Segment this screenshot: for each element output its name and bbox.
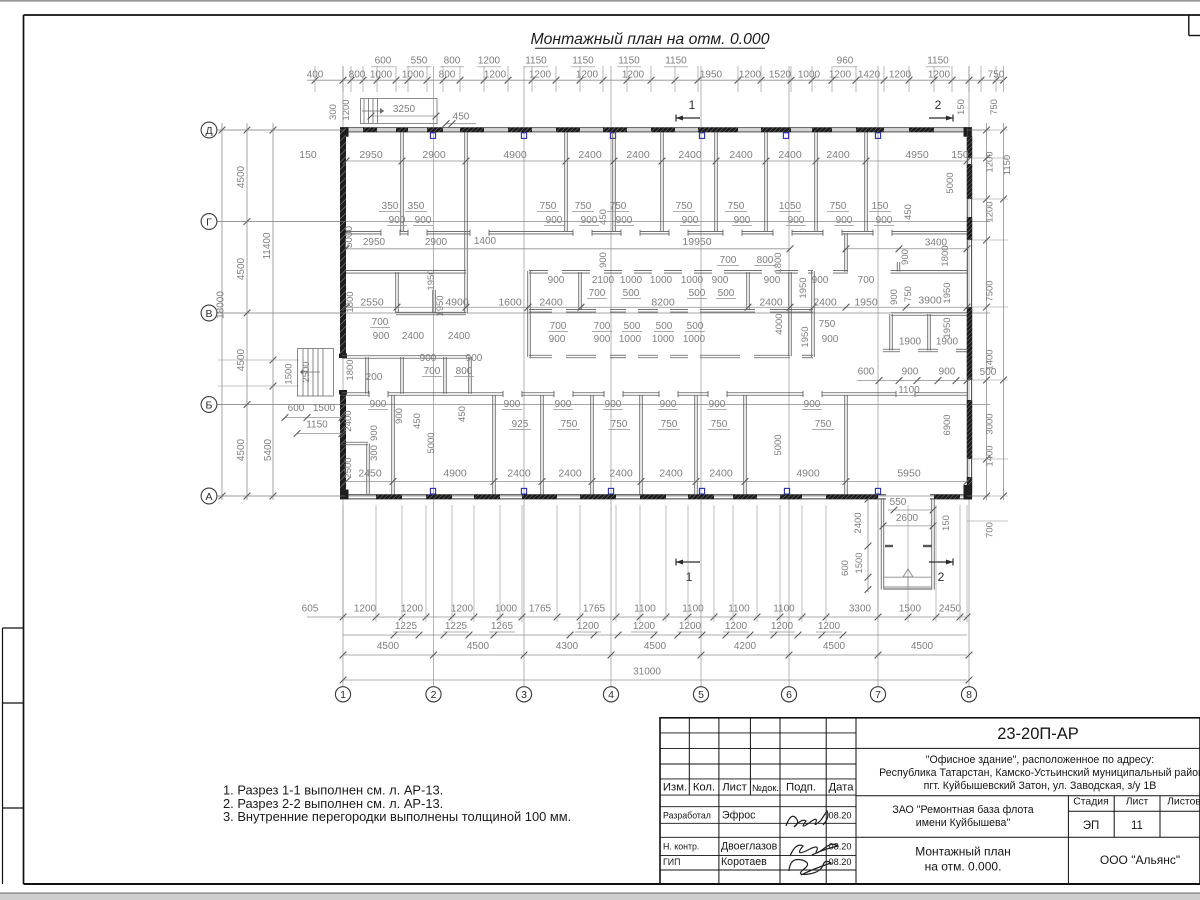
svg-text:08.20: 08.20 [829, 811, 852, 821]
svg-text:1200: 1200 [985, 201, 996, 222]
svg-text:900: 900 [389, 215, 406, 226]
svg-text:4: 4 [608, 689, 614, 701]
svg-text:5000: 5000 [344, 225, 355, 248]
svg-text:имени Куйбышева": имени Куйбышева" [916, 817, 1011, 829]
svg-text:750: 750 [575, 201, 592, 212]
svg-text:Эфрос: Эфрос [722, 810, 756, 822]
svg-text:11: 11 [1131, 820, 1143, 832]
svg-text:4300: 4300 [556, 641, 579, 652]
svg-text:5000: 5000 [426, 432, 437, 453]
svg-text:1950: 1950 [800, 326, 811, 347]
svg-text:1800: 1800 [345, 291, 356, 312]
svg-text:2: 2 [431, 689, 437, 701]
svg-text:2400: 2400 [729, 149, 753, 161]
svg-text:200: 200 [366, 372, 383, 383]
svg-text:900: 900 [548, 275, 565, 286]
svg-text:700: 700 [589, 288, 606, 299]
svg-text:4500: 4500 [236, 438, 247, 461]
svg-text:700: 700 [372, 317, 389, 328]
svg-text:800: 800 [456, 366, 473, 377]
svg-text:1200: 1200 [818, 621, 841, 632]
svg-text:1950: 1950 [700, 70, 723, 81]
svg-text:1200: 1200 [577, 621, 600, 632]
svg-text:1400: 1400 [474, 236, 497, 247]
svg-text:1950: 1950 [942, 282, 953, 303]
svg-text:Д: Д [205, 125, 212, 137]
svg-text:900: 900 [889, 289, 900, 305]
svg-text:1950: 1950 [942, 317, 953, 338]
svg-text:Подп.: Подп. [786, 782, 816, 794]
svg-text:700: 700 [550, 321, 567, 332]
svg-text:1000: 1000 [402, 70, 425, 81]
svg-text:2400: 2400 [402, 331, 425, 342]
svg-text:1200: 1200 [451, 604, 474, 615]
svg-text:Монтажный план: Монтажный план [915, 845, 1011, 859]
svg-text:900: 900 [420, 353, 437, 364]
svg-text:2100: 2100 [592, 275, 615, 286]
svg-text:1150: 1150 [665, 56, 687, 67]
svg-text:1765: 1765 [583, 604, 606, 615]
svg-text:1950: 1950 [426, 269, 437, 290]
svg-text:800: 800 [444, 56, 461, 67]
svg-text:4900: 4900 [443, 468, 467, 480]
svg-text:900: 900 [546, 215, 563, 226]
svg-text:960: 960 [837, 56, 854, 67]
svg-text:900: 900 [836, 215, 853, 226]
svg-text:1200: 1200 [679, 621, 702, 632]
svg-text:1200: 1200 [341, 99, 352, 120]
svg-text:2400: 2400 [558, 468, 582, 480]
svg-text:1150: 1150 [927, 56, 949, 67]
svg-text:500: 500 [718, 288, 735, 299]
svg-text:1800: 1800 [345, 359, 356, 380]
svg-text:750: 750 [989, 99, 1000, 115]
svg-text:550: 550 [411, 56, 428, 67]
svg-text:750: 750 [661, 419, 678, 430]
svg-text:1950: 1950 [854, 297, 878, 309]
svg-text:900: 900 [616, 215, 633, 226]
svg-text:2400: 2400 [778, 149, 802, 161]
svg-text:1000: 1000 [652, 334, 675, 345]
svg-text:750: 750 [561, 419, 578, 430]
svg-text:700: 700 [424, 366, 441, 377]
svg-text:4900: 4900 [796, 468, 820, 480]
svg-text:2400: 2400 [853, 512, 864, 533]
svg-text:1200: 1200 [739, 70, 762, 81]
svg-text:3. Внутренние перегородки выпо: 3. Внутренние перегородки выполнены толщ… [223, 809, 571, 824]
svg-text:900: 900 [369, 425, 380, 441]
svg-text:пгт. Куйбышевский Затон, ул. З: пгт. Куйбышевский Затон, ул. Заводская, … [924, 780, 1157, 792]
svg-text:1200: 1200 [576, 70, 599, 81]
svg-text:4500: 4500 [823, 641, 846, 652]
svg-text:750: 750 [676, 201, 693, 212]
svg-text:Лист: Лист [1126, 797, 1149, 808]
svg-text:8200: 8200 [651, 297, 675, 309]
svg-text:600: 600 [375, 56, 392, 67]
svg-text:Н. контр.: Н. контр. [663, 842, 699, 852]
svg-text:1500: 1500 [854, 552, 865, 573]
svg-text:1265: 1265 [491, 621, 514, 632]
svg-text:2450: 2450 [358, 468, 382, 480]
svg-text:ООО "Альянс": ООО "Альянс" [1100, 853, 1180, 867]
svg-text:1600: 1600 [498, 297, 522, 309]
svg-text:1800: 1800 [773, 252, 784, 273]
svg-text:2400: 2400 [539, 297, 563, 309]
svg-text:1000: 1000 [683, 334, 706, 345]
svg-text:1900: 1900 [899, 337, 922, 348]
svg-text:500: 500 [656, 321, 673, 332]
svg-text:Г: Г [206, 216, 212, 228]
svg-text:150: 150 [951, 149, 969, 161]
svg-text:150: 150 [956, 99, 967, 115]
svg-text:900: 900 [709, 399, 726, 410]
svg-text:1420: 1420 [858, 70, 881, 81]
svg-text:1200: 1200 [354, 604, 377, 615]
svg-text:900: 900 [594, 334, 611, 345]
svg-text:900: 900 [549, 334, 566, 345]
svg-text:2400: 2400 [759, 297, 783, 309]
svg-text:1200: 1200 [622, 70, 645, 81]
svg-text:450: 450 [598, 209, 609, 225]
svg-text:08.20: 08.20 [829, 842, 852, 852]
svg-text:750: 750 [903, 286, 914, 302]
svg-text:1150: 1150 [572, 56, 594, 67]
svg-text:1520: 1520 [769, 70, 792, 81]
svg-text:1200: 1200 [484, 70, 507, 81]
svg-text:500: 500 [687, 321, 704, 332]
svg-text:150: 150 [299, 149, 317, 161]
svg-text:4000: 4000 [774, 313, 785, 334]
svg-text:700: 700 [594, 321, 611, 332]
svg-text:3: 3 [521, 689, 527, 701]
svg-text:3300: 3300 [849, 604, 872, 615]
svg-text:900: 900 [876, 215, 893, 226]
svg-text:1200: 1200 [771, 621, 794, 632]
svg-text:550: 550 [890, 497, 907, 508]
svg-text:2900: 2900 [422, 149, 446, 161]
svg-text:1200: 1200 [633, 621, 656, 632]
svg-text:на отм. 0.000.: на отм. 0.000. [925, 860, 1002, 874]
svg-text:450: 450 [457, 406, 468, 422]
svg-text:1100: 1100 [634, 604, 656, 615]
svg-text:2400: 2400 [826, 149, 850, 161]
svg-text:Стадия: Стадия [1073, 797, 1108, 808]
svg-text:1000: 1000 [495, 604, 518, 615]
svg-text:1150: 1150 [618, 56, 640, 67]
svg-text:31000: 31000 [633, 667, 661, 678]
svg-text:800: 800 [757, 255, 774, 266]
svg-text:1100: 1100 [682, 604, 704, 615]
svg-text:1150: 1150 [306, 420, 328, 431]
svg-text:4200: 4200 [734, 641, 757, 652]
svg-text:Лист: Лист [722, 782, 747, 794]
svg-text:900: 900 [712, 275, 729, 286]
svg-text:900: 900 [902, 367, 919, 378]
svg-text:2550: 2550 [360, 297, 384, 309]
svg-text:2400: 2400 [659, 468, 683, 480]
svg-text:1200: 1200 [478, 56, 501, 67]
svg-text:6900: 6900 [942, 414, 953, 435]
svg-text:Республика Татарстан, Камско-У: Республика Татарстан, Камско-Устьинский … [879, 767, 1200, 779]
svg-text:1000: 1000 [620, 275, 643, 286]
svg-text:750: 750 [819, 319, 836, 330]
svg-text:900: 900 [788, 215, 805, 226]
svg-text:2600: 2600 [896, 513, 919, 524]
svg-text:750: 750 [728, 201, 745, 212]
svg-text:2950: 2950 [359, 149, 383, 161]
svg-text:700: 700 [720, 255, 737, 266]
svg-text:ГИП: ГИП [663, 857, 680, 867]
svg-text:900: 900 [812, 275, 829, 286]
svg-text:1200: 1200 [725, 621, 748, 632]
svg-text:1000: 1000 [798, 70, 821, 81]
svg-text:"Офисное здание", расположенно: "Офисное здание", расположенное по адрес… [926, 754, 1154, 766]
svg-text:5000: 5000 [773, 434, 784, 455]
svg-text:2400: 2400 [626, 149, 650, 161]
svg-text:8: 8 [966, 689, 972, 701]
svg-text:925: 925 [512, 419, 529, 430]
svg-text:900: 900 [466, 353, 483, 364]
svg-text:№док.: №док. [752, 783, 779, 793]
svg-text:750: 750 [988, 70, 1005, 81]
svg-text:500: 500 [623, 288, 640, 299]
svg-text:Коротаев: Коротаев [721, 856, 767, 868]
svg-text:7500: 7500 [985, 280, 996, 301]
svg-text:1950: 1950 [435, 295, 446, 316]
svg-text:1950: 1950 [798, 277, 809, 298]
svg-text:900: 900 [660, 399, 677, 410]
svg-text:5950: 5950 [897, 468, 921, 480]
svg-text:1150: 1150 [525, 56, 547, 67]
svg-text:6: 6 [786, 689, 792, 701]
svg-text:Дата: Дата [828, 782, 854, 794]
svg-text:300: 300 [328, 104, 339, 120]
svg-text:5000: 5000 [945, 172, 956, 193]
svg-text:1100: 1100 [728, 604, 750, 615]
svg-text:900: 900 [682, 215, 699, 226]
svg-text:ЭП: ЭП [1083, 820, 1100, 832]
svg-text:900: 900 [939, 367, 956, 378]
svg-text:700: 700 [985, 522, 996, 538]
svg-text:Монтажный план на отм. 0.000: Монтажный план на отм. 0.000 [530, 31, 769, 48]
svg-text:2400: 2400 [448, 331, 471, 342]
svg-text:1000: 1000 [650, 275, 673, 286]
svg-text:2400: 2400 [709, 468, 733, 480]
svg-text:А: А [205, 491, 212, 503]
svg-text:800: 800 [349, 70, 366, 81]
svg-text:600: 600 [858, 367, 875, 378]
svg-text:900: 900 [822, 334, 839, 345]
svg-text:23-20П-АР: 23-20П-АР [997, 725, 1079, 743]
svg-text:750: 750 [830, 201, 847, 212]
svg-text:750: 750 [610, 201, 627, 212]
svg-text:900: 900 [804, 399, 821, 410]
svg-text:4500: 4500 [644, 641, 667, 652]
svg-text:900: 900 [504, 399, 521, 410]
svg-text:750: 750 [815, 419, 832, 430]
svg-text:Разработал: Разработал [663, 811, 711, 821]
svg-text:900: 900 [900, 249, 911, 265]
svg-text:3900: 3900 [918, 295, 942, 307]
svg-text:450: 450 [412, 413, 423, 429]
svg-text:1200: 1200 [829, 70, 852, 81]
svg-text:2400: 2400 [343, 410, 354, 431]
svg-text:400: 400 [307, 70, 324, 81]
svg-text:2400: 2400 [578, 149, 602, 161]
svg-text:2400: 2400 [609, 468, 633, 480]
svg-text:1: 1 [686, 570, 693, 584]
svg-text:Листов: Листов [1167, 797, 1200, 808]
svg-text:18000: 18000 [216, 291, 227, 319]
svg-text:350: 350 [382, 201, 399, 212]
svg-text:1225: 1225 [395, 621, 418, 632]
svg-text:5: 5 [698, 689, 704, 701]
svg-text:900: 900 [394, 408, 405, 424]
svg-text:19950: 19950 [682, 236, 711, 248]
svg-text:900: 900 [764, 275, 781, 286]
svg-text:700: 700 [858, 275, 875, 286]
svg-text:500: 500 [624, 321, 641, 332]
svg-text:4900: 4900 [445, 297, 469, 309]
svg-text:Изм.: Изм. [663, 782, 687, 794]
svg-text:900: 900 [555, 399, 572, 410]
svg-text:900: 900 [605, 399, 622, 410]
svg-text:2: 2 [935, 98, 942, 112]
svg-text:1: 1 [340, 689, 346, 701]
svg-text:500: 500 [689, 288, 706, 299]
svg-text:900: 900 [415, 215, 432, 226]
svg-text:900: 900 [581, 215, 598, 226]
svg-text:2: 2 [938, 570, 945, 584]
svg-text:4500: 4500 [236, 165, 247, 188]
svg-text:5400: 5400 [263, 438, 274, 461]
svg-text:Кол.: Кол. [693, 782, 715, 794]
svg-text:450: 450 [903, 204, 914, 220]
svg-text:1500: 1500 [899, 604, 922, 615]
svg-text:1500: 1500 [284, 363, 295, 384]
svg-text:1050: 1050 [779, 201, 802, 212]
svg-text:2400: 2400 [678, 149, 702, 161]
svg-text:900: 900 [598, 252, 609, 268]
svg-text:605: 605 [302, 604, 319, 615]
svg-text:350: 350 [408, 201, 425, 212]
svg-text:1: 1 [689, 98, 696, 112]
svg-text:4500: 4500 [911, 641, 934, 652]
svg-text:2400: 2400 [507, 468, 531, 480]
svg-text:4500: 4500 [467, 641, 490, 652]
svg-text:4500: 4500 [377, 641, 400, 652]
svg-text:1100: 1100 [773, 604, 795, 615]
svg-text:1400: 1400 [985, 445, 996, 466]
svg-text:7: 7 [875, 689, 881, 701]
svg-text:В: В [205, 308, 212, 320]
svg-text:08.20: 08.20 [829, 857, 852, 867]
svg-text:Двоеглазов: Двоеглазов [721, 841, 778, 853]
svg-text:500: 500 [980, 367, 997, 378]
svg-text:150: 150 [872, 201, 889, 212]
svg-text:900: 900 [734, 215, 751, 226]
svg-text:2900: 2900 [425, 237, 448, 248]
svg-text:1200: 1200 [928, 70, 951, 81]
svg-text:2400: 2400 [813, 297, 837, 309]
svg-text:3000: 3000 [985, 413, 996, 434]
svg-text:1765: 1765 [529, 604, 552, 615]
svg-text:2500: 2500 [301, 361, 312, 382]
svg-text:750: 750 [540, 201, 557, 212]
svg-text:4500: 4500 [236, 257, 247, 280]
svg-text:1200: 1200 [401, 604, 424, 615]
svg-text:600: 600 [840, 560, 851, 576]
svg-text:11400: 11400 [262, 232, 273, 260]
svg-text:2950: 2950 [363, 237, 386, 248]
svg-text:750: 750 [611, 419, 628, 430]
svg-text:1200: 1200 [889, 70, 912, 81]
svg-text:750: 750 [711, 419, 728, 430]
svg-text:2500: 2500 [343, 457, 354, 478]
svg-text:900: 900 [373, 331, 390, 342]
svg-text:4900: 4900 [503, 149, 527, 161]
svg-text:1100: 1100 [898, 385, 920, 396]
svg-text:1200: 1200 [985, 151, 996, 172]
svg-text:ЗАО "Ремонтная база флота: ЗАО "Ремонтная база флота [892, 804, 1033, 816]
svg-text:800: 800 [439, 70, 456, 81]
svg-text:1225: 1225 [445, 621, 468, 632]
svg-text:4950: 4950 [905, 149, 929, 161]
svg-text:900: 900 [370, 399, 387, 410]
svg-text:1000: 1000 [370, 70, 393, 81]
svg-text:2450: 2450 [939, 604, 962, 615]
svg-text:150: 150 [941, 515, 952, 531]
svg-text:300: 300 [369, 445, 380, 461]
svg-text:1000: 1000 [619, 334, 642, 345]
svg-text:1200: 1200 [529, 70, 552, 81]
svg-text:Б: Б [206, 399, 213, 411]
svg-text:1000: 1000 [681, 275, 704, 286]
svg-text:3250: 3250 [393, 104, 416, 115]
